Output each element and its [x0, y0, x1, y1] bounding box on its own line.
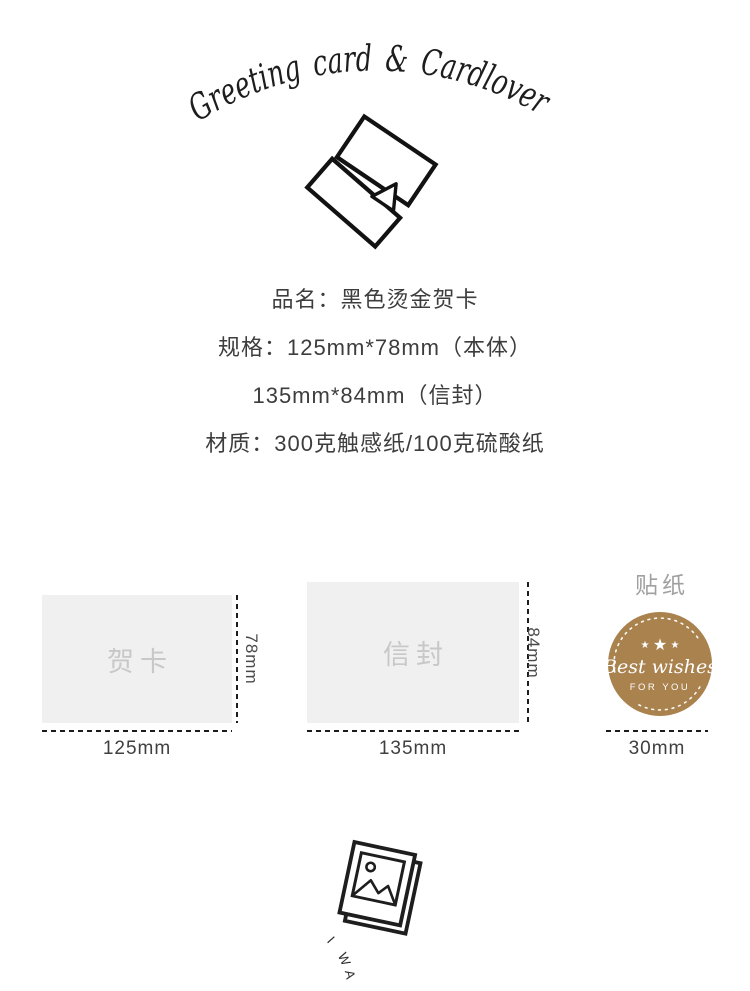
polaroid-photo-icon — [338, 842, 422, 934]
sticker-best-wishes-text: Best wishes — [608, 656, 712, 678]
product-name-line: 品名：黑色烫金贺卡 — [0, 276, 750, 324]
spec-line-body: 规格：125mm*78mm（本体） — [0, 324, 750, 372]
star-icon: ★ — [671, 640, 680, 651]
spec-line-envelope: 135mm*84mm（信封） — [0, 372, 750, 420]
sticker-width-label: 30mm — [606, 738, 708, 760]
envelope-width-dimension-line — [307, 730, 519, 732]
envelope-size-box-label: 信封 — [377, 633, 449, 672]
card-height-label: 78mm — [241, 633, 261, 685]
card-width-label: 125mm — [42, 738, 232, 760]
postcard-stamp: I WANT TO SEND YOU A POSTCARD — [284, 796, 472, 984]
folded-card-icon — [300, 110, 445, 255]
card-size-box: 贺卡 — [42, 595, 232, 723]
card-height-dimension-line — [236, 595, 238, 723]
card-width-dimension-line — [42, 730, 232, 732]
product-info: 品名：黑色烫金贺卡 规格：125mm*78mm（本体） 135mm*84mm（信… — [0, 276, 750, 468]
envelope-width-label: 135mm — [307, 738, 519, 760]
sun-icon — [366, 862, 376, 872]
material-line: 材质：300克触感纸/100克硫酸纸 — [0, 420, 750, 468]
star-icon: ★ — [653, 637, 667, 654]
card-size-box-label: 贺卡 — [101, 640, 173, 679]
best-wishes-sticker-badge: ★ ★ ★ Best wishes FOR YOU — [608, 612, 712, 716]
envelope-size-box: 信封 — [307, 582, 519, 723]
envelope-height-label: 84mm — [523, 627, 543, 679]
sticker-for-you-text: FOR YOU — [630, 682, 691, 693]
sticker-width-dimension-line — [606, 730, 708, 732]
sticker-title: 贴纸 — [598, 566, 722, 600]
star-icon: ★ — [641, 640, 650, 651]
